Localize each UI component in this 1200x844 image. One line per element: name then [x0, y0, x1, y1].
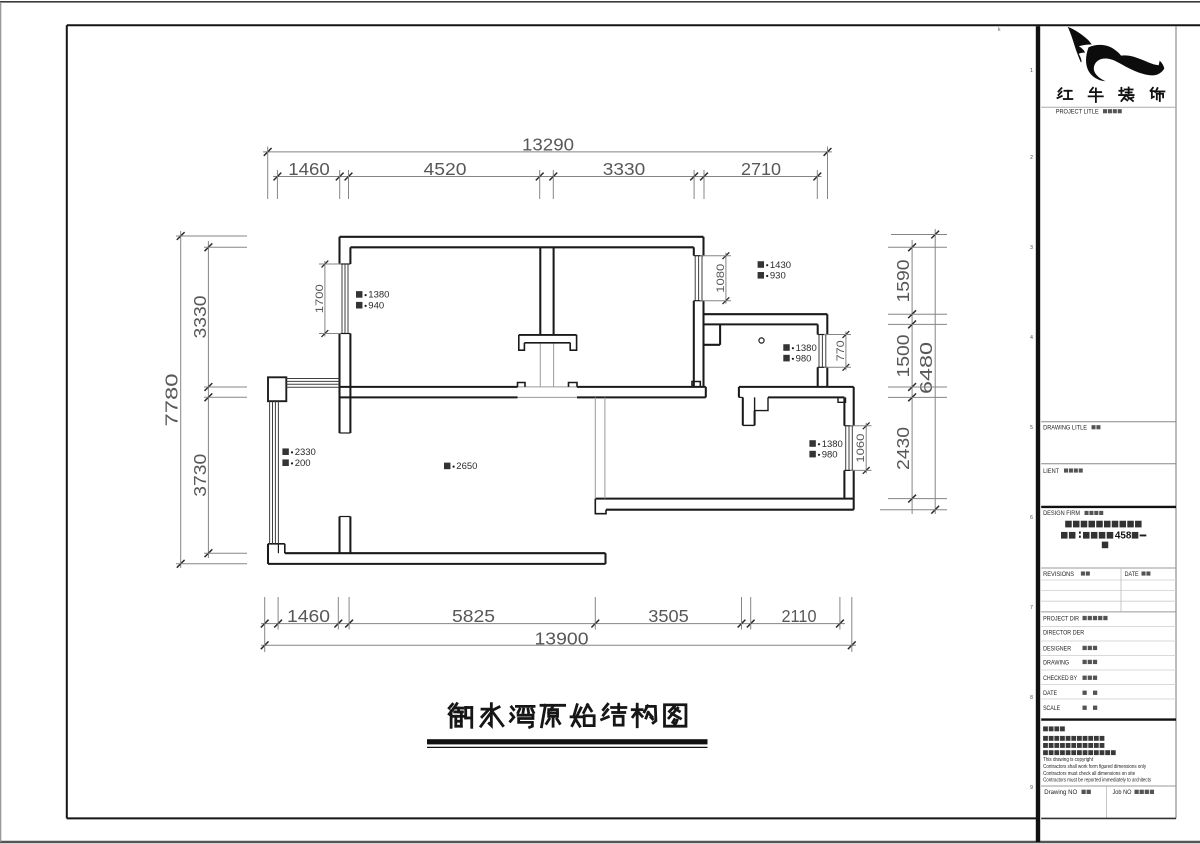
svg-text:1460: 1460 [288, 159, 330, 179]
svg-text:1460: 1460 [287, 606, 330, 626]
svg-text:4520: 4520 [424, 159, 467, 179]
svg-text:Contractors shall work form fi: Contractors shall work form figured dime… [1043, 764, 1146, 770]
svg-text:DESIGN FIRM: DESIGN FIRM [1043, 510, 1080, 517]
svg-text:3730: 3730 [190, 453, 210, 496]
svg-text:3330: 3330 [603, 159, 646, 179]
svg-text:1500: 1500 [893, 334, 913, 377]
svg-text:200: 200 [295, 458, 311, 469]
svg-text:2430: 2430 [893, 427, 913, 470]
svg-text:458: 458 [1115, 530, 1132, 542]
svg-text:2110: 2110 [782, 606, 817, 626]
svg-text:2: 2 [1030, 155, 1033, 161]
svg-text:980: 980 [796, 353, 812, 364]
svg-text:This drawing is copyright: This drawing is copyright [1043, 757, 1093, 763]
svg-text:Contractors must be reported i: Contractors must be reported immediately… [1043, 777, 1151, 783]
svg-text:PROJECT DIR: PROJECT DIR [1043, 615, 1079, 622]
svg-text:980: 980 [822, 449, 838, 460]
svg-text:DRAWING: DRAWING [1043, 659, 1069, 666]
svg-text:13290: 13290 [522, 134, 574, 154]
svg-text:SCALE: SCALE [1043, 705, 1060, 712]
svg-text:1: 1 [1030, 68, 1033, 74]
svg-text:1430: 1430 [770, 260, 791, 271]
svg-text:930: 930 [770, 271, 786, 282]
svg-text:DESIGNER: DESIGNER [1043, 645, 1071, 652]
svg-text:1380: 1380 [796, 343, 817, 354]
svg-text:6480: 6480 [916, 342, 936, 394]
svg-text:DIRECTOR DER: DIRECTOR DER [1043, 630, 1084, 637]
svg-text:3: 3 [1030, 245, 1033, 251]
svg-text:770: 770 [835, 340, 847, 361]
svg-text:1060: 1060 [855, 434, 867, 463]
svg-text:DATE: DATE [1043, 690, 1057, 697]
svg-text:5825: 5825 [452, 606, 495, 626]
svg-text:7780: 7780 [162, 373, 182, 426]
svg-text:1380: 1380 [368, 290, 389, 301]
svg-text:DATE: DATE [1125, 571, 1139, 578]
svg-text:2650: 2650 [456, 461, 477, 472]
svg-text:1380: 1380 [822, 439, 843, 450]
svg-text:2330: 2330 [295, 447, 316, 458]
svg-text:940: 940 [368, 301, 384, 312]
svg-text:9: 9 [1030, 785, 1033, 791]
svg-text:1700: 1700 [314, 284, 326, 313]
svg-text:3505: 3505 [648, 606, 689, 626]
svg-text:PROJECT LITLE: PROJECT LITLE [1056, 109, 1099, 116]
svg-text:1590: 1590 [893, 259, 913, 302]
svg-text:4: 4 [1030, 335, 1033, 341]
svg-text:DRAWING LITLE: DRAWING LITLE [1043, 425, 1087, 432]
svg-text:CHECKED BY: CHECKED BY [1043, 675, 1077, 682]
svg-text:REVISIONS: REVISIONS [1043, 571, 1074, 578]
svg-text:3330: 3330 [190, 295, 210, 338]
svg-text:1080: 1080 [715, 264, 727, 293]
svg-text:5: 5 [1030, 425, 1033, 431]
svg-text:13900: 13900 [535, 629, 589, 649]
svg-text:8: 8 [1030, 695, 1033, 701]
svg-text:7: 7 [1030, 605, 1033, 611]
svg-text:Contractors must check all dim: Contractors must check all dimensions on… [1043, 771, 1135, 777]
svg-text:2710: 2710 [741, 159, 781, 179]
svg-text:Drawing NO: Drawing NO [1044, 789, 1077, 796]
svg-text:Job NO: Job NO [1113, 789, 1132, 796]
svg-text:LIENT: LIENT [1043, 468, 1059, 475]
svg-text:6: 6 [1030, 515, 1033, 521]
